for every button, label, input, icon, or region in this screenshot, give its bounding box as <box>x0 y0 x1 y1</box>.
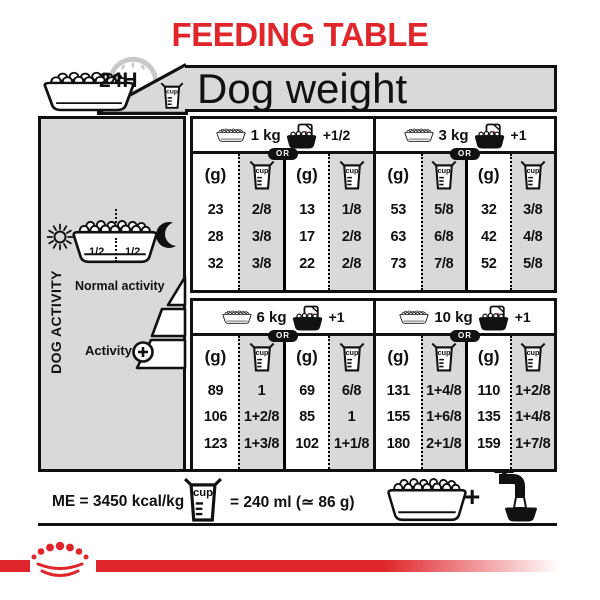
weight-header-row: 6 kg +1 OR <box>193 301 373 336</box>
value-cell: 1+6/8 <box>423 404 466 430</box>
value-cell: 102 <box>286 431 328 457</box>
value-cell: 1 <box>240 378 283 404</box>
value-cell: 106 <box>193 404 238 430</box>
cup-header-icon <box>249 160 275 190</box>
grams-header: (g) <box>286 154 328 196</box>
cup-header-icon <box>431 342 457 372</box>
kibble-pouch-icon <box>292 305 324 332</box>
grams-column: (g) 89 106 123 <box>193 336 238 469</box>
values-grid: (g) 23 28 32 2/8 3/8 3/8 (g) 13 17 22 1/… <box>193 154 373 290</box>
cup-header-icon <box>339 160 365 190</box>
value-cell: 85 <box>286 404 328 430</box>
weight-label: 6 kg <box>257 309 287 326</box>
kibble-pouch-icon <box>286 123 318 150</box>
grams-column: (g) 69 85 102 <box>283 336 328 469</box>
footer-bottom-rule <box>38 523 557 526</box>
value-cell: 28 <box>193 223 238 250</box>
values-grid: (g) 131 155 180 1+4/8 1+6/8 2+1/8 (g) 11… <box>376 336 554 469</box>
cup-header-icon <box>339 342 365 372</box>
value-cell: 1+2/8 <box>512 378 555 404</box>
red-stripe <box>96 560 560 572</box>
value-cell: 2/8 <box>240 196 283 223</box>
footer-top-rule <box>38 469 557 472</box>
value-cell: 4/8 <box>512 223 555 250</box>
grams-header: (g) <box>376 336 421 378</box>
value-cell: 89 <box>193 378 238 404</box>
grams-column: (g) 131 155 180 <box>376 336 421 469</box>
value-cell: 1+7/8 <box>512 431 555 457</box>
value-cell: 23 <box>193 196 238 223</box>
grams-column: (g) 110 135 159 <box>465 336 510 469</box>
grams-header: (g) <box>376 154 421 196</box>
weight-label: 1 kg <box>251 127 281 144</box>
value-cell: 69 <box>286 378 328 404</box>
grams-column: (g) 32 42 52 <box>465 154 510 290</box>
value-cell: 3/8 <box>240 223 283 250</box>
weight-label: 3 kg <box>439 127 469 144</box>
kibble-pouch-icon <box>478 305 510 332</box>
bowl-icon <box>404 128 434 142</box>
value-cell: 73 <box>376 251 421 278</box>
water-tap-icon <box>487 467 539 525</box>
cup-header-icon <box>520 342 546 372</box>
value-cell: 53 <box>376 196 421 223</box>
value-cell: 13 <box>286 196 328 223</box>
weight-header-row: 3 kg +1 OR <box>376 119 554 154</box>
weight-section-1kg: 1 kg +1/2 OR (g) 23 28 32 2/8 3/8 3/8 (g… <box>190 116 376 293</box>
cup-header-icon <box>431 160 457 190</box>
grams-column: (g) 13 17 22 <box>283 154 328 290</box>
weight-section-10kg: 10 kg +1 OR (g) 131 155 180 1+4/8 1+6/8 … <box>373 298 557 472</box>
activity-level-triangles <box>131 272 189 374</box>
cup-column: 1+4/8 1+6/8 2+1/8 <box>421 336 466 469</box>
value-cell: 110 <box>468 378 510 404</box>
value-cell: 1+4/8 <box>423 378 466 404</box>
or-badge: OR <box>450 330 480 342</box>
values-grid: (g) 89 106 123 1 1+2/8 1+3/8 (g) 69 85 1… <box>193 336 373 469</box>
cup-header-icon <box>520 160 546 190</box>
or-badge: OR <box>268 148 298 160</box>
cup-column: 1+2/8 1+4/8 1+7/8 <box>510 336 555 469</box>
value-cell: 22 <box>286 251 328 278</box>
value-cell: 2/8 <box>330 223 373 250</box>
extra-portion-label: +1 <box>511 127 527 143</box>
value-cell: 3/8 <box>240 251 283 278</box>
value-cell: 131 <box>376 378 421 404</box>
feeding-table-page: cup <box>0 0 600 600</box>
or-badge: OR <box>450 148 480 160</box>
grams-header: (g) <box>468 336 510 378</box>
value-cell: 6/8 <box>423 223 466 250</box>
value-cell: 180 <box>376 431 421 457</box>
weight-section-6kg: 6 kg +1 OR (g) 89 106 123 1 1+2/8 1+3/8 … <box>190 298 376 472</box>
cup-column: 6/8 1 1+1/8 <box>328 336 373 469</box>
weight-header-row: 1 kg +1/2 OR <box>193 119 373 154</box>
value-cell: 7/8 <box>423 251 466 278</box>
extra-portion-label: +1 <box>515 309 531 325</box>
value-cell: 155 <box>376 404 421 430</box>
dog-activity-sidebar: 1/2 1/2 DOG ACTIVITY Normal activity Act… <box>38 116 186 472</box>
value-cell: 2/8 <box>330 251 373 278</box>
red-stripe <box>0 560 30 572</box>
cup-column: 2/8 3/8 3/8 <box>238 154 283 290</box>
value-cell: 1+3/8 <box>240 431 283 457</box>
cup-header-icon <box>249 342 275 372</box>
measuring-cup-icon <box>160 82 184 109</box>
cup-column: 3/8 4/8 5/8 <box>510 154 555 290</box>
kibble-pouch-icon <box>474 123 506 150</box>
value-cell: 2+1/8 <box>423 431 466 457</box>
or-badge: OR <box>268 330 298 342</box>
value-cell: 135 <box>468 404 510 430</box>
value-cell: 1+2/8 <box>240 404 283 430</box>
half-portion-label: 1/2 <box>125 246 140 258</box>
value-cell: 1/8 <box>330 196 373 223</box>
weight-header-row: 10 kg +1 OR <box>376 301 554 336</box>
cup-column: 1/8 2/8 2/8 <box>328 154 373 290</box>
grams-header: (g) <box>193 336 238 378</box>
dog-weight-label: Dog weight <box>185 68 407 110</box>
extra-portion-label: +1 <box>329 309 345 325</box>
plus-label: + <box>464 481 480 513</box>
dog-weight-header: Dog weight <box>185 65 557 112</box>
extra-portion-label: +1/2 <box>323 127 351 143</box>
value-cell: 1+4/8 <box>512 404 555 430</box>
value-cell: 17 <box>286 223 328 250</box>
hours-label: 24H <box>99 69 138 93</box>
value-cell: 32 <box>193 251 238 278</box>
cup-column: 5/8 6/8 7/8 <box>421 154 466 290</box>
weight-label: 10 kg <box>434 309 472 326</box>
value-cell: 32 <box>468 196 510 223</box>
value-cell: 1 <box>330 404 373 430</box>
food-bowl-icon <box>386 476 468 522</box>
grams-header: (g) <box>286 336 328 378</box>
me-label: ME = 3450 kcal/kg <box>52 493 184 511</box>
value-cell: 5/8 <box>512 251 555 278</box>
half-portion-label: 1/2 <box>89 246 104 258</box>
value-cell: 5/8 <box>423 196 466 223</box>
value-cell: 3/8 <box>512 196 555 223</box>
royal-canin-crown-logo <box>28 540 92 582</box>
grams-header: (g) <box>468 154 510 196</box>
grams-header: (g) <box>193 154 238 196</box>
value-cell: 52 <box>468 251 510 278</box>
moon-icon <box>156 221 182 249</box>
bowl-icon <box>399 310 429 324</box>
portion-divider-line <box>115 238 117 262</box>
value-cell: 42 <box>468 223 510 250</box>
value-cell: 159 <box>468 431 510 457</box>
cup-column: 1 1+2/8 1+3/8 <box>238 336 283 469</box>
value-cell: 123 <box>193 431 238 457</box>
dog-activity-label: DOG ACTIVITY <box>48 262 68 382</box>
value-cell: 63 <box>376 223 421 250</box>
value-cell: 6/8 <box>330 378 373 404</box>
measuring-cup-icon <box>182 477 224 522</box>
bowl-icon <box>216 128 246 142</box>
value-cell: 1+1/8 <box>330 431 373 457</box>
weight-section-3kg: 3 kg +1 OR (g) 53 63 73 5/8 6/8 7/8 (g) … <box>373 116 557 293</box>
bowl-icon <box>222 310 252 324</box>
grams-column: (g) 53 63 73 <box>376 154 421 290</box>
values-grid: (g) 53 63 73 5/8 6/8 7/8 (g) 32 42 52 3/… <box>376 154 554 290</box>
activity-label: Activity <box>85 343 132 358</box>
grams-column: (g) 23 28 32 <box>193 154 238 290</box>
page-title: FEEDING TABLE <box>0 16 600 54</box>
cup-equals-label: = 240 ml (≃ 86 g) <box>230 493 355 512</box>
